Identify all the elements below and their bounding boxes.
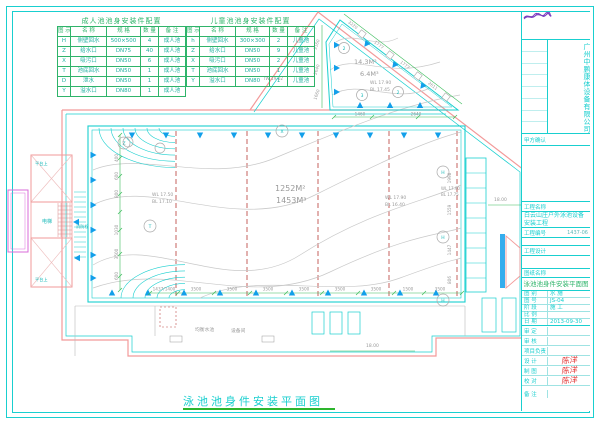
sig-label: 审 定 xyxy=(522,327,548,335)
bottom-level: BL 17.75 xyxy=(441,192,459,197)
drawing-name-label-row: 图纸名称 xyxy=(522,269,590,278)
flow-marker-icon xyxy=(91,177,97,183)
flow-marker-icon xyxy=(401,133,407,139)
approval-row: 甲方确认 xyxy=(522,134,590,146)
fixture-tag: H xyxy=(441,298,444,304)
table-cell: DN50 xyxy=(107,67,141,77)
child-pool-config-table: 图 示名 称规 格数 量备 注h侧壁回水300×3002儿童池Z给水口DN509… xyxy=(186,26,315,87)
table-cell: Z xyxy=(58,47,71,57)
pool-step-arcs xyxy=(99,128,185,298)
table-cell: 2 xyxy=(270,37,288,47)
flow-marker-icon xyxy=(333,133,339,139)
table-cell: 500×500 xyxy=(107,37,141,47)
dimension-ticks xyxy=(118,115,464,295)
title-block-spacer xyxy=(522,238,590,246)
table-cell: 儿童池 xyxy=(288,47,315,57)
dim-label: 3500 xyxy=(435,287,446,292)
fixture-tag: 2 xyxy=(343,46,346,52)
platform-label: 平台上 xyxy=(35,160,48,167)
dim-label: 1660 xyxy=(313,88,321,100)
drawing-title: 泳池池身件安装平面图 xyxy=(183,393,323,409)
bottom-level: BL 17.45 xyxy=(370,87,390,93)
project-name-label: 工程名称 xyxy=(524,203,546,211)
dim-label: 3500 xyxy=(335,287,346,292)
sig-label: 项目负责 xyxy=(522,347,548,355)
dim-label: 800 xyxy=(114,190,119,198)
sig-label: 制 图 xyxy=(522,367,548,375)
drawing-title-underline xyxy=(183,408,335,410)
design-row: 工程设计 xyxy=(522,246,590,256)
table-cell: DN50 xyxy=(107,57,141,67)
flow-marker-icon xyxy=(299,133,305,139)
dim-label: 600 xyxy=(114,172,119,180)
table-cell: H xyxy=(58,37,71,47)
table-cell: 侧壁回水 xyxy=(200,37,236,47)
table-cell: 9 xyxy=(270,47,288,57)
table-header-cell: 规 格 xyxy=(107,27,141,37)
table-cell: 成人池 xyxy=(159,67,186,77)
table-cell: DN80 xyxy=(107,87,141,97)
flow-marker-icon xyxy=(109,290,115,296)
dim-label: 1500 xyxy=(403,287,414,292)
table-header-cell: 名 称 xyxy=(200,27,236,37)
dim-label: 1447 xyxy=(447,244,452,255)
dim-label: 806 xyxy=(447,276,452,284)
table-cell: 儿童池 xyxy=(288,77,315,87)
project-name: 白云山庄户外泳池设备安装工程 xyxy=(522,212,590,228)
signature-scribble xyxy=(522,12,552,21)
dim-label: 3220 xyxy=(347,20,359,31)
dim-label: 1437/1400 xyxy=(153,287,176,292)
table-header-cell: 图 示 xyxy=(58,27,71,37)
room-label-equipment: 设备间 xyxy=(231,327,246,334)
drawing-name: 泳池池身件安装平面图 xyxy=(522,278,590,291)
table-cell: 泄水 xyxy=(71,77,107,87)
info-value: 施 工 xyxy=(548,305,590,311)
table-cell: 1 xyxy=(270,67,288,77)
table-cell: 300×300 xyxy=(236,37,270,47)
table-cell: 溢水口 xyxy=(71,87,107,97)
child-pool-table-title: 儿童池池身安装件配置 xyxy=(186,17,315,26)
company-section: 广州中鹏康体设备有限公司 xyxy=(522,40,590,134)
design-label: 工程设计 xyxy=(524,247,546,255)
info-value: 水 施 xyxy=(548,291,590,297)
signature-table: 审 定 审 核 项目负责 设 计 陈洋 制 图 陈洋 校 对 陈洋 备 注 xyxy=(522,326,590,401)
flow-marker-icon xyxy=(362,40,371,49)
water-level: WL 17.90 xyxy=(385,195,406,201)
bottom-level: BL 17.10 xyxy=(152,199,172,205)
flow-marker-icon xyxy=(91,252,97,258)
table-header-cell: 备 注 xyxy=(159,27,186,37)
stair-hatch xyxy=(58,203,72,237)
company-name: 广州中鹏康体设备有限公司 xyxy=(548,40,590,133)
flow-marker-icon xyxy=(357,102,363,108)
water-level: WL 17.50 xyxy=(152,192,173,198)
project-name-label-row: 工程名称 xyxy=(522,202,590,212)
flow-marker-icon xyxy=(325,290,331,296)
fixture-tag: X xyxy=(280,129,283,135)
equipment-zone xyxy=(75,298,516,356)
dim-label: 18.00 xyxy=(366,343,379,349)
flow-marker-icon xyxy=(417,102,423,108)
flow-marker-icon xyxy=(334,89,340,95)
water-level: WL 17.90 xyxy=(370,80,391,86)
pool-lane-lines xyxy=(176,131,457,297)
hatched-door-icon xyxy=(500,234,505,288)
flow-marker-icon xyxy=(197,133,203,139)
dim-label: 3500 xyxy=(227,287,238,292)
approval-label: 甲方确认 xyxy=(524,136,546,144)
dim-label: 3500 xyxy=(114,248,119,259)
table-cell: DN75 xyxy=(107,47,141,57)
table-cell: D xyxy=(58,77,71,87)
info-value: 2013-09-30 xyxy=(548,319,590,325)
flow-marker-icon xyxy=(91,202,97,208)
project-no-value: 1437-06 xyxy=(567,230,588,236)
table-cell: 池底回水 xyxy=(200,67,236,77)
elevator-label: 电梯 xyxy=(42,218,52,225)
table-cell: DN50 xyxy=(236,67,270,77)
sig-label: 设 计 xyxy=(522,357,548,365)
child-pool-area: 14.3M² xyxy=(354,58,377,66)
info-value xyxy=(548,312,590,318)
fixture-tag: T xyxy=(148,224,152,230)
info-label: 图 号 xyxy=(522,298,548,304)
flow-marker-icon xyxy=(91,227,97,233)
fixture-tag: H xyxy=(441,170,444,176)
flow-marker-icon xyxy=(91,275,97,281)
fixture-tag: H xyxy=(441,235,444,241)
adult-pool-table-title: 成人池池身安装件配置 xyxy=(57,17,186,26)
table-cell: 1 xyxy=(141,77,159,87)
dim-label: 600 xyxy=(114,272,119,280)
info-label: 阶 段 xyxy=(522,305,548,311)
table-cell: 1 xyxy=(141,87,159,97)
dim-label: 18.00 xyxy=(494,197,507,203)
table-cell: 成人池 xyxy=(159,37,186,47)
table-cell: 儿童池 xyxy=(288,67,315,77)
table-cell: 溢水口 xyxy=(200,77,236,87)
drawing-sheet: X H H H T Z 2 3 2 1252M² 1453M³ WL 17.50… xyxy=(0,0,600,424)
dim-label: 1998 xyxy=(447,172,452,183)
table-cell: 成人池 xyxy=(159,57,186,67)
main-pool xyxy=(88,126,465,302)
table-cell: 吸污口 xyxy=(200,57,236,67)
table-cell: 6 xyxy=(141,57,159,67)
table-header-cell: 备 注 xyxy=(288,27,315,37)
sig-label: 备 注 xyxy=(522,390,548,398)
flow-marker-icon xyxy=(435,133,441,139)
table-cell: 成人池 xyxy=(159,77,186,87)
flow-marker-icon xyxy=(91,152,97,158)
dim-label: 1460 xyxy=(355,112,366,117)
table-cell: X xyxy=(58,57,71,67)
table-cell: DN50 xyxy=(236,47,270,57)
table-cell: 吸污口 xyxy=(71,57,107,67)
table-header-cell: 图 示 xyxy=(187,27,200,37)
project-no-label: 工程编号 xyxy=(524,229,546,237)
dim-label: 3500 xyxy=(263,287,274,292)
table-cell: h xyxy=(187,37,200,47)
adult-pool-config-table: 图 示名 称规 格数 量备 注H侧壁回水500×5004成人池Z给水口DN754… xyxy=(57,26,186,97)
sig-label: 校 对 xyxy=(522,377,548,385)
revision-grid xyxy=(522,40,548,133)
info-label: 日 期 xyxy=(522,319,548,325)
table-cell: 2 xyxy=(270,57,288,67)
table-header-cell: 数 量 xyxy=(270,27,288,37)
table-cell: 儿童池 xyxy=(288,57,315,67)
main-pool-volume: 1453M³ xyxy=(276,196,306,205)
dim-label: 3500 xyxy=(371,287,382,292)
child-pool-volume: 6.4M³ xyxy=(360,70,379,78)
table-cell: 1 xyxy=(141,67,159,77)
table-cell: Z xyxy=(187,47,200,57)
info-label: 图 别 xyxy=(522,291,548,297)
table-header-cell: 数 量 xyxy=(141,27,159,37)
platform-label: 平台上 xyxy=(35,276,48,283)
table-cell: Y xyxy=(187,77,200,87)
dim-label: 3500 xyxy=(191,287,202,292)
table-cell: DN50 xyxy=(236,57,270,67)
table-cell: 池底回水 xyxy=(71,67,107,77)
fixture-tag: 2 xyxy=(397,90,400,96)
flow-marker-icon xyxy=(361,290,367,296)
main-pool-area: 1252M² xyxy=(275,184,305,193)
table-cell: DN50 xyxy=(107,77,141,87)
table-cell: 4 xyxy=(141,37,159,47)
project-no-row: 工程编号 1437-06 xyxy=(522,228,590,238)
sig-label: 审 核 xyxy=(522,337,548,345)
table-header-cell: 规 格 xyxy=(236,27,270,37)
table-cell: 成人池 xyxy=(159,47,186,57)
dim-label: 400 xyxy=(114,154,119,162)
side-entry xyxy=(500,234,520,288)
table-cell: T xyxy=(187,67,200,77)
child-pool-table-block: 儿童池池身安装件配置 图 示名 称规 格数 量备 注h侧壁回水300×3002儿… xyxy=(186,17,315,87)
info-label: 比 例 xyxy=(522,312,548,318)
dim-label: 1559 xyxy=(447,204,452,215)
table-cell: 40 xyxy=(141,47,159,57)
table-cell: Y xyxy=(58,87,71,97)
flow-marker-icon xyxy=(253,290,259,296)
table-cell: T xyxy=(58,67,71,77)
hydrant-label: 消防栓 xyxy=(76,223,89,230)
drawing-name-label: 图纸名称 xyxy=(524,269,546,277)
water-level: WL 17.90 xyxy=(441,186,460,191)
drawing-info-table: 图 别水 施 图 号JS-04 阶 段施 工 比 例 日 期2013-09-30 xyxy=(522,291,590,326)
adult-pool-table-block: 成人池池身安装件配置 图 示名 称规 格数 量备 注H侧壁回水500×5004成… xyxy=(57,17,186,97)
title-block-spacer xyxy=(522,146,590,202)
flow-marker-icon xyxy=(387,102,393,108)
table-cell: 成人池 xyxy=(159,87,186,97)
table-cell: 给水口 xyxy=(200,47,236,57)
dim-label: 2640 xyxy=(411,112,422,117)
dim-label: 3500 xyxy=(299,287,310,292)
table-cell: DN80 xyxy=(236,77,270,87)
title-block: 广州中鹏康体设备有限公司 甲方确认 工程名称 白云山庄户外泳池设备安装工程 工程… xyxy=(521,12,590,411)
dim-label: 1030 xyxy=(114,224,119,235)
flow-marker-icon xyxy=(289,290,295,296)
fixture-tag: 3 xyxy=(361,93,364,99)
flow-marker-icon xyxy=(74,255,80,261)
flow-marker-icon xyxy=(367,133,373,139)
table-cell: 儿童池 xyxy=(288,37,315,47)
flow-marker-icon xyxy=(181,290,187,296)
flow-marker-icon xyxy=(265,133,271,139)
gutter-ladder xyxy=(466,158,486,292)
table-header-cell: 名 称 xyxy=(71,27,107,37)
room-label-balance-tank: 均衡水池 xyxy=(195,326,214,333)
bottom-level: BL 16.40 xyxy=(385,202,405,208)
title-block-spacer xyxy=(522,256,590,269)
table-cell: 1 xyxy=(270,77,288,87)
table-cell: X xyxy=(187,57,200,67)
table-cell: 侧壁回水 xyxy=(71,37,107,47)
flow-marker-icon xyxy=(231,133,237,139)
table-cell: 给水口 xyxy=(71,47,107,57)
info-value: JS-04 xyxy=(548,298,590,304)
